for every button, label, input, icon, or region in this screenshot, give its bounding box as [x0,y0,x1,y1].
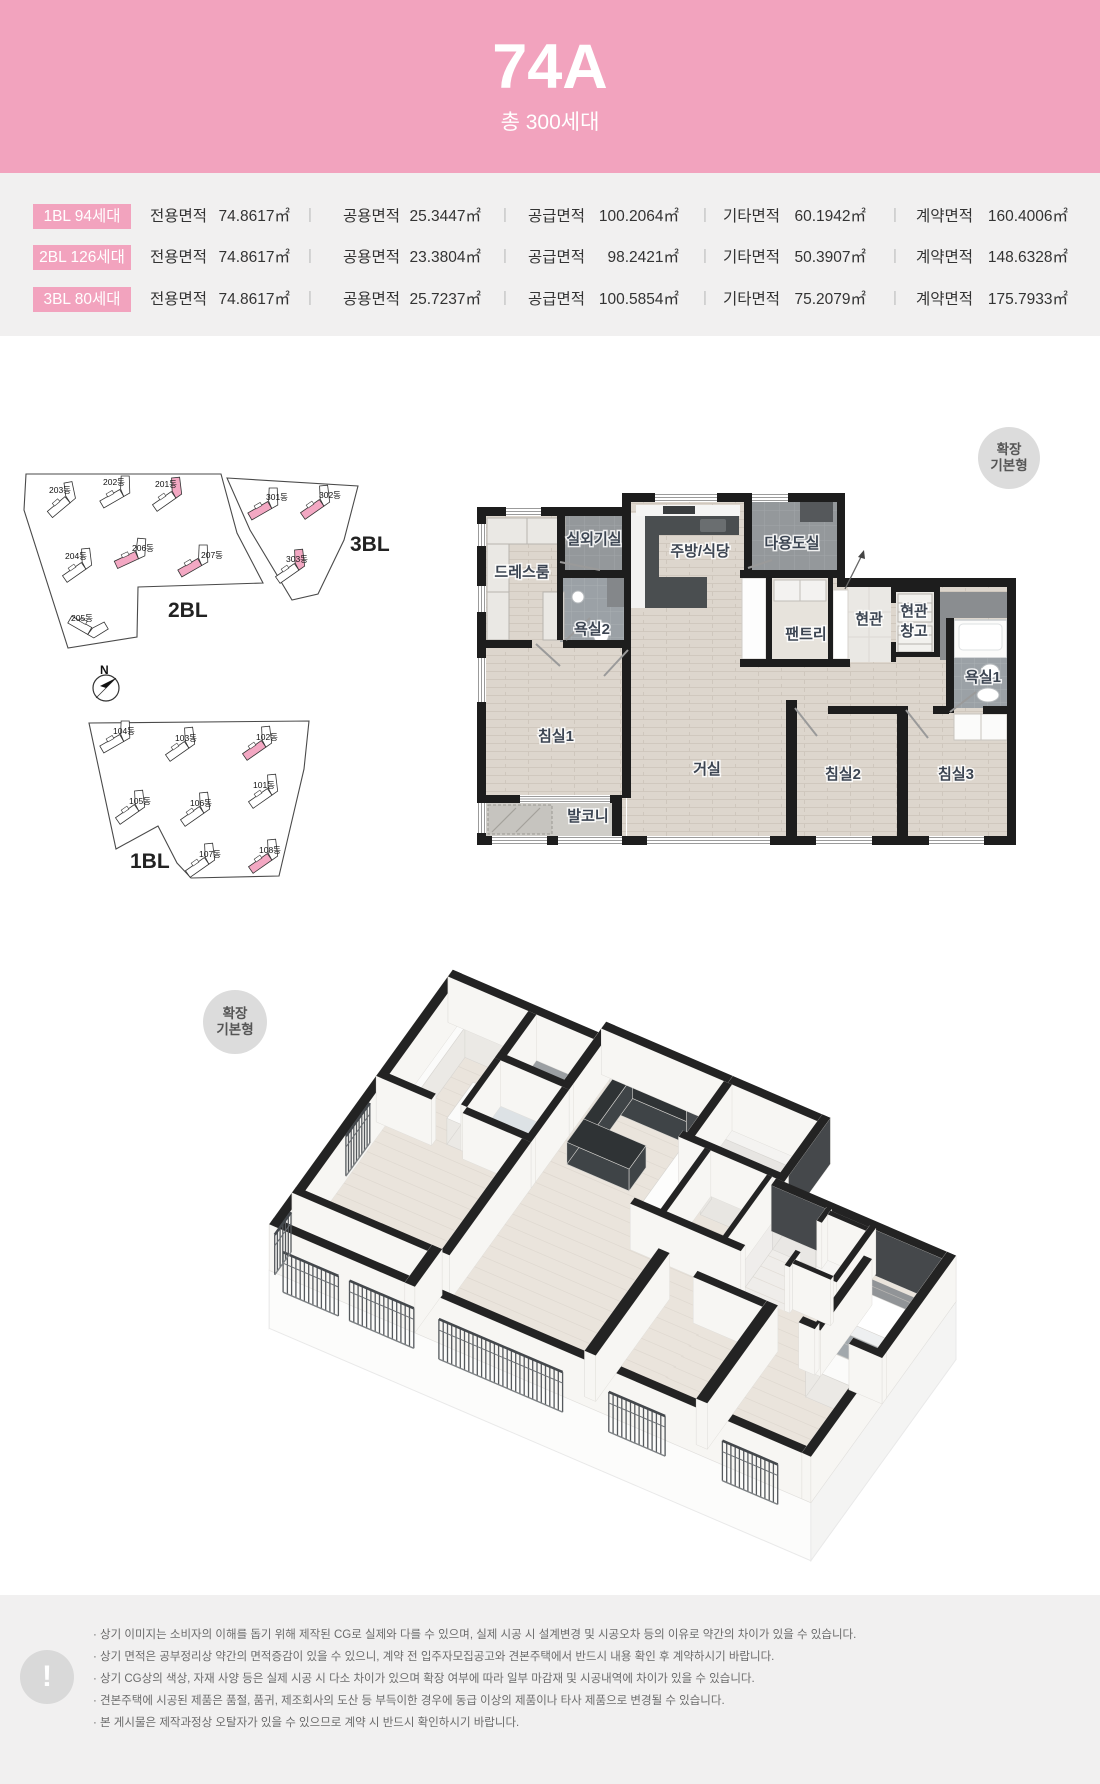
svg-text:현관: 현관 [855,611,883,628]
svg-text:207동: 207동 [201,550,223,560]
svg-text:드레스룸: 드레스룸 [494,564,549,581]
svg-text:발코니: 발코니 [567,808,608,825]
svg-text:106동: 106동 [190,798,212,808]
svg-text:침실2: 침실2 [825,766,861,783]
svg-text:203동: 203동 [49,485,71,495]
svg-text:N: N [100,663,109,677]
svg-text:2BL: 2BL [168,599,208,622]
svg-text:거실: 거실 [693,761,721,778]
svg-text:3BL: 3BL [350,533,390,556]
svg-text:팬트리: 팬트리 [785,626,826,643]
svg-text:202동: 202동 [103,477,125,487]
svg-text:현관: 현관 [900,603,928,620]
svg-text:1BL: 1BL [130,850,170,873]
svg-text:108동: 108동 [259,845,281,855]
svg-text:침실3: 침실3 [938,766,974,783]
svg-text:101동: 101동 [253,780,275,790]
svg-text:다용도실: 다용도실 [764,535,819,552]
svg-text:창고: 창고 [900,623,928,640]
svg-text:105동: 105동 [129,796,151,806]
svg-text:301동: 301동 [266,492,288,502]
svg-text:103동: 103동 [175,733,197,743]
svg-text:침실1: 침실1 [538,728,574,745]
svg-text:104동: 104동 [113,726,135,736]
svg-text:실외기실: 실외기실 [566,530,621,548]
svg-text:주방/식당: 주방/식당 [670,542,730,560]
svg-text:욕실1: 욕실1 [965,669,1001,686]
svg-text:102동: 102동 [256,732,278,742]
svg-text:204동: 204동 [65,551,87,561]
svg-text:107동: 107동 [199,849,221,859]
svg-text:302동: 302동 [319,490,341,500]
svg-text:205동: 205동 [71,613,93,623]
svg-text:201동: 201동 [155,479,177,489]
svg-text:206동: 206동 [132,543,154,553]
svg-text:303동: 303동 [286,554,308,564]
svg-text:욕실2: 욕실2 [574,621,610,638]
